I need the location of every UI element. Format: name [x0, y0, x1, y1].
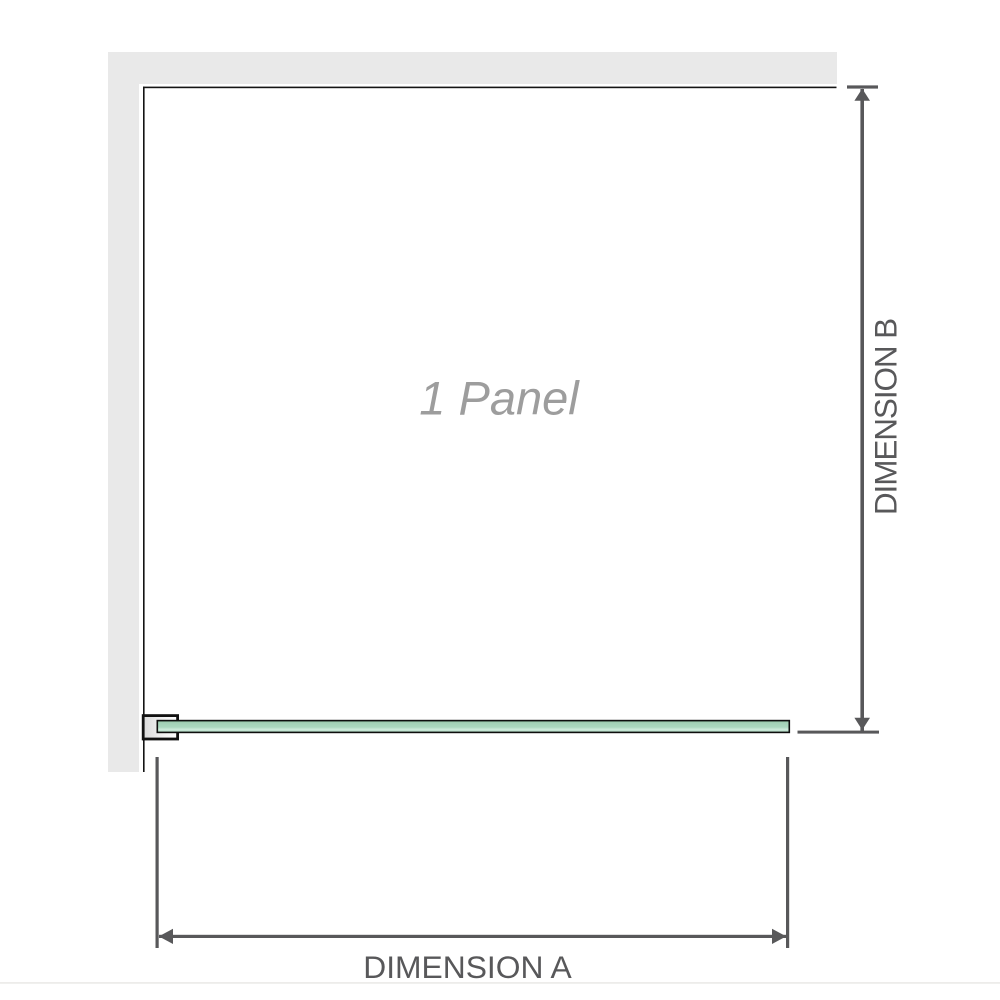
- svg-text:1 Panel: 1 Panel: [419, 372, 580, 425]
- svg-text:DIMENSION B: DIMENSION B: [867, 319, 903, 515]
- svg-text:DIMENSION A: DIMENSION A: [363, 949, 572, 985]
